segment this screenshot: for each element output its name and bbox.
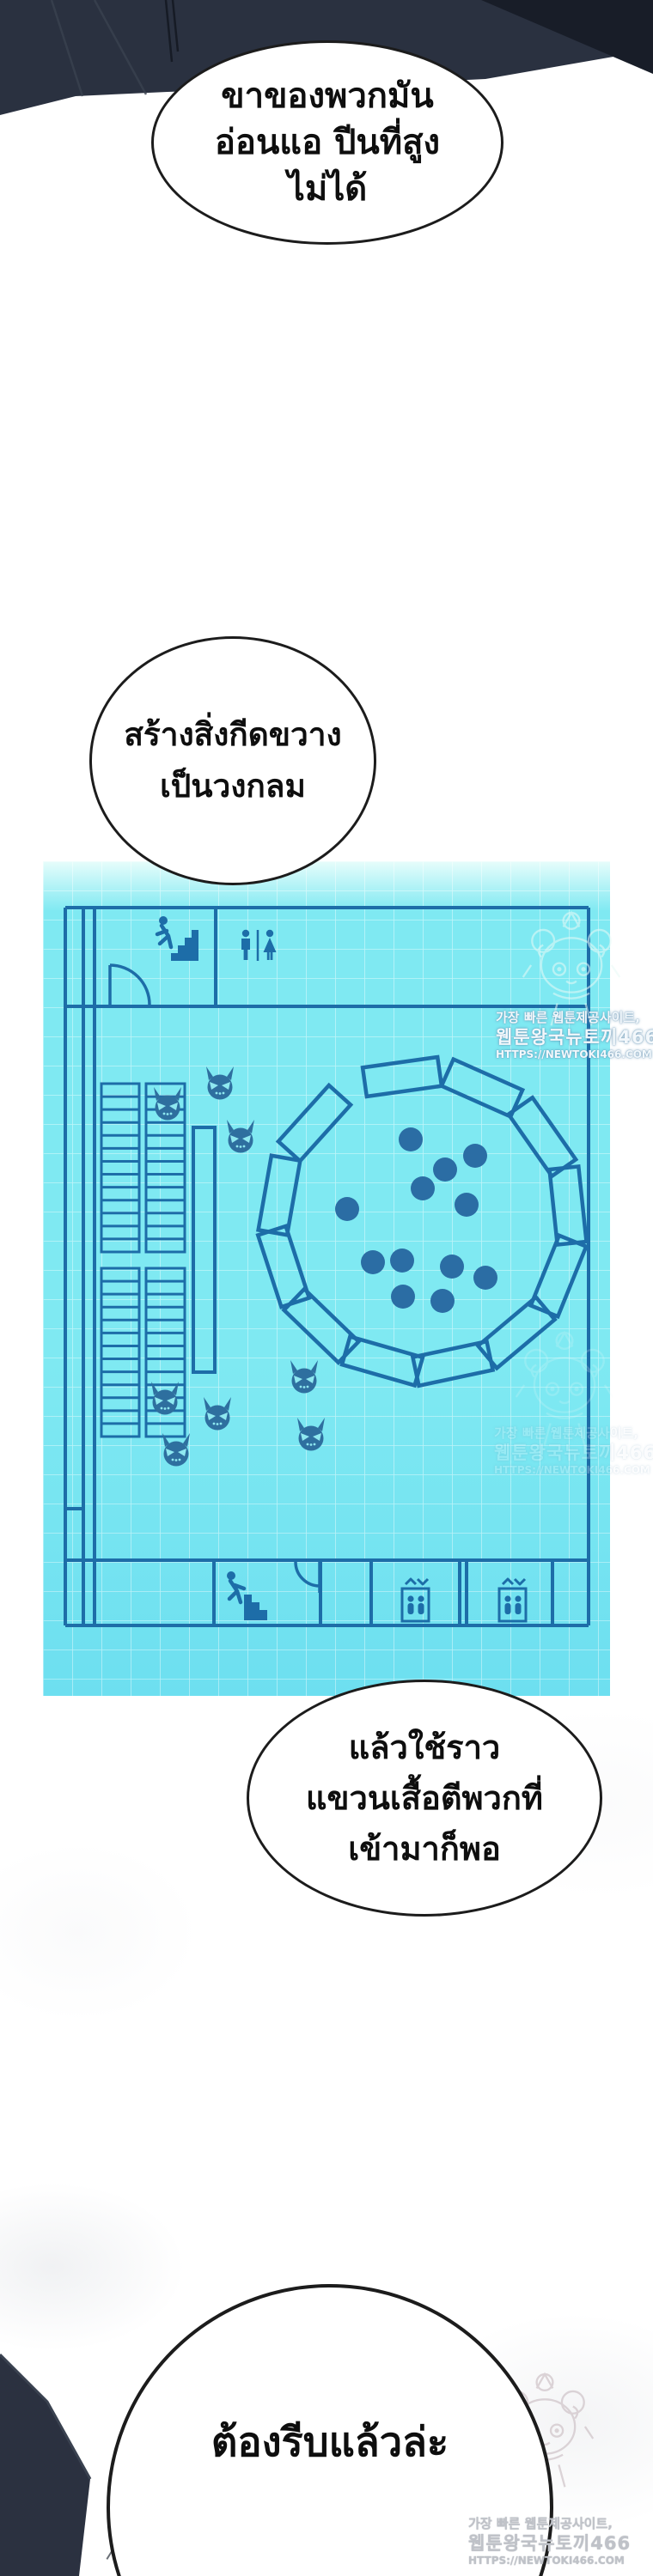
watermark-text: 가장 빠른 웹툰제공사이트, [496,1010,653,1026]
watermark-text: 웹툰왕국뉴토끼466 [468,2532,631,2555]
bubble-text-line: เป็นวงกลม [160,761,306,812]
watermark-text: 웹툰왕국뉴토끼466 [494,1442,653,1464]
watermark-text: 가장 빠른 웹툰제공사이트, [468,2516,631,2532]
monster-dot [473,1266,497,1290]
speech-bubble: สร้างสิ่งกีดขวาง เป็นวงกลม [89,636,376,885]
bubble-text-line: ขาของพวกมัน [221,73,433,119]
bubble-text-line: แล้วใช้ราว [349,1722,501,1773]
watermark-text: HTTPS://NEWTOKI466.COM [468,2555,631,2567]
watermark-block: 가장 빠른 웹툰제공사이트, 웹툰왕국뉴토끼466 HTTPS://NEWTOK… [494,1425,653,1477]
bubble-text-line: สร้างสิ่งกีดขวาง [124,709,341,761]
monster-dot [361,1250,385,1274]
speech-bubble: ขาของพวกมัน อ่อนแอ ปีนที่สูง ไม่ได้ [151,40,503,245]
bubble-text-line: ไม่ได้ [288,166,368,212]
webtoon-page: ขาของพวกมัน อ่อนแอ ปีนที่สูง ไม่ได้ สร้า… [0,0,653,2576]
monster-dot [391,1285,415,1309]
speech-bubble: แล้วใช้ราว แขวนเสื้อตีพวกที่ เข้ามาก็พอ [247,1680,602,1917]
bubble-text-line: เข้ามาก็พอ [348,1824,501,1874]
monster-dot [411,1176,435,1200]
watermark-text: HTTPS://NEWTOKI466.COM [496,1048,653,1061]
bubble-text-line: อ่อนแอ ปีนที่สูง [215,119,440,166]
watermark-block: 가장 빠른 웹툰제공사이트, 웹툰왕국뉴토끼466 HTTPS://NEWTOK… [468,2516,631,2567]
bubble-text-line: ต้องรีบแล้วล่ะ [211,2417,449,2469]
monster-dot [335,1197,359,1221]
monster-dot [440,1255,464,1279]
monster-dot [430,1289,455,1313]
monster-dot [399,1127,423,1151]
watermark-text: 가장 빠른 웹툰제공사이트, [494,1425,653,1442]
bubble-text-line: แขวนเสื้อตีพวกที่ [306,1773,543,1824]
restroom-icon [241,930,277,961]
monster-dot [390,1249,414,1273]
watermark-text: 웹툰왕국뉴토끼466 [496,1026,653,1048]
monster-dot [455,1193,479,1217]
watermark-block: 가장 빠른 웹툰제공사이트, 웹툰왕국뉴토끼466 HTTPS://NEWTOK… [496,1010,653,1061]
monster-dot [463,1144,487,1168]
monster-dot [433,1157,457,1182]
watermark-text: HTTPS://NEWTOKI466.COM [494,1464,653,1477]
